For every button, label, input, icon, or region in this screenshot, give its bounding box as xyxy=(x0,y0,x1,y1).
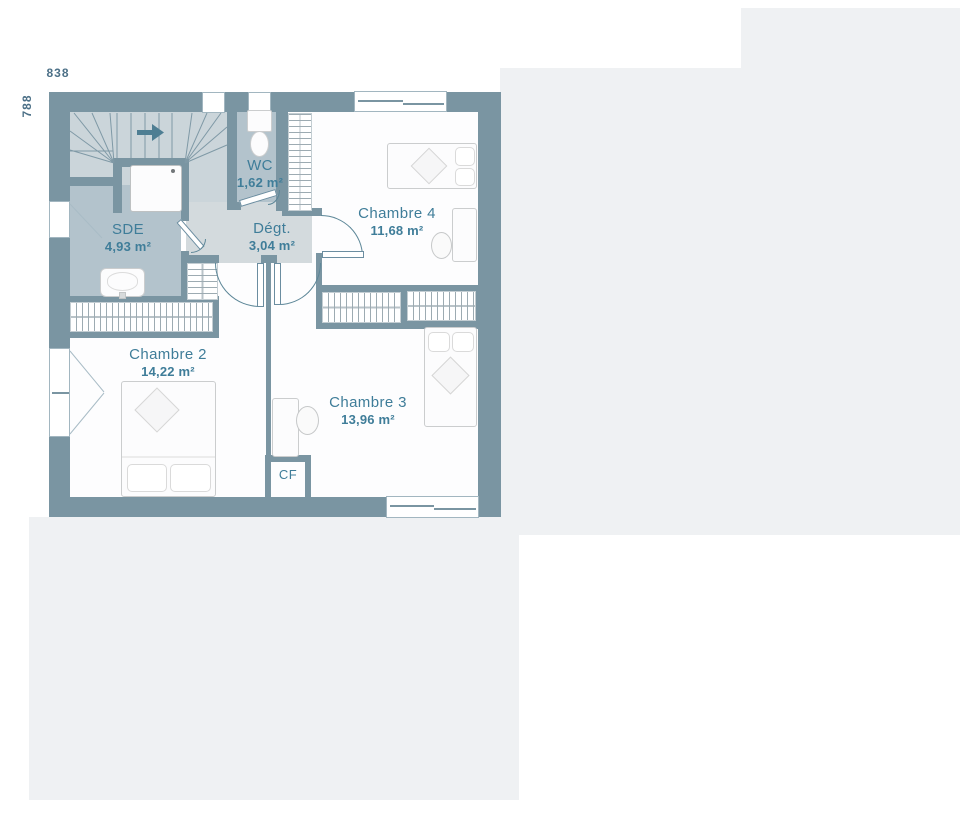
chambre2-door-leaf xyxy=(257,263,264,307)
wall-stairs-wc xyxy=(227,112,237,210)
degt-name: Dégt. xyxy=(249,221,295,238)
chambre3-chair xyxy=(296,406,319,435)
exterior-wall-left xyxy=(49,92,70,517)
chambre4-wardrobe xyxy=(288,113,312,211)
chambre2-pillow-right xyxy=(170,464,211,492)
dimension-height-label: 788 xyxy=(20,86,34,126)
chambre2-label: Chambre 2 14,22 m² xyxy=(129,347,207,380)
background-panel-top-right xyxy=(741,8,960,68)
chambre2-pillow-left xyxy=(127,464,167,492)
sink-tap xyxy=(119,292,126,299)
wall-sde-top xyxy=(70,177,116,186)
shower-head-icon xyxy=(171,169,175,173)
background-panel-bottom-left xyxy=(29,517,519,800)
toilet-bowl xyxy=(250,131,269,157)
chambre2-area: 14,22 m² xyxy=(129,364,207,380)
sde-label: SDE 4,93 m² xyxy=(105,222,151,255)
cf-closet-label: CF xyxy=(271,467,305,482)
chambre3-wardrobe-left xyxy=(322,292,401,323)
window-chambre2-divider xyxy=(52,392,69,394)
background-panel-right xyxy=(500,68,960,535)
chambre3-desk xyxy=(272,398,299,457)
chambre3-label: Chambre 3 13,96 m² xyxy=(329,395,407,428)
wall-wardrobe-stub xyxy=(213,296,219,338)
chambre3-pillow-right xyxy=(452,332,474,352)
wall-degt-bottom-left xyxy=(186,255,219,263)
chambre3-area: 13,96 m² xyxy=(329,412,407,428)
chambre2-name: Chambre 2 xyxy=(129,347,207,364)
window-chambre3 xyxy=(386,496,479,518)
chambre3-pillow-left xyxy=(428,332,450,352)
chambre3-wardrobe-right xyxy=(407,291,476,321)
chambre4-desk xyxy=(452,208,477,262)
window-sde xyxy=(49,201,70,238)
sde-area: 4,93 m² xyxy=(105,239,151,255)
wc-name: WC xyxy=(237,158,283,175)
chambre4-area: 11,68 m² xyxy=(358,223,436,239)
sink-basin xyxy=(107,272,138,291)
window-chambre3-sash-left xyxy=(390,505,434,507)
wall-wc-bottom-stub xyxy=(227,202,241,210)
dimension-width-label: 838 xyxy=(46,66,69,80)
toilet-tank xyxy=(247,110,272,132)
chambre3-name: Chambre 3 xyxy=(329,395,407,412)
chambre4-door-leaf xyxy=(322,251,364,258)
wall-chambre2-chambre3 xyxy=(266,263,271,458)
sde-name: SDE xyxy=(105,222,151,239)
chambre4-pillow-top xyxy=(455,147,475,166)
wall-sde-degt-upper xyxy=(181,159,189,221)
hall-wardrobe xyxy=(187,263,218,300)
window-chambre4-sash-left xyxy=(358,100,403,102)
window-chambre4-sash-right xyxy=(403,103,444,105)
chambre3-door-leaf xyxy=(274,263,281,305)
degt-area: 3,04 m² xyxy=(249,238,295,254)
chambre4-label: Chambre 4 11,68 m² xyxy=(358,206,436,239)
degt-label: Dégt. 3,04 m² xyxy=(249,221,295,254)
chambre4-pillow-bottom xyxy=(455,168,475,186)
window-chambre3-sash-right xyxy=(434,508,476,510)
chambre2-bed-fold xyxy=(122,456,215,458)
floor-plan-canvas: CF xyxy=(0,0,960,821)
exterior-wall-right xyxy=(478,92,501,517)
window-top-small xyxy=(202,92,225,113)
wall-degt-bottom-post xyxy=(261,255,277,263)
wc-area: 1,62 m² xyxy=(237,175,283,191)
wc-label: WC 1,62 m² xyxy=(237,158,283,191)
chambre4-name: Chambre 4 xyxy=(358,206,436,223)
chambre2-wardrobe xyxy=(70,302,213,332)
